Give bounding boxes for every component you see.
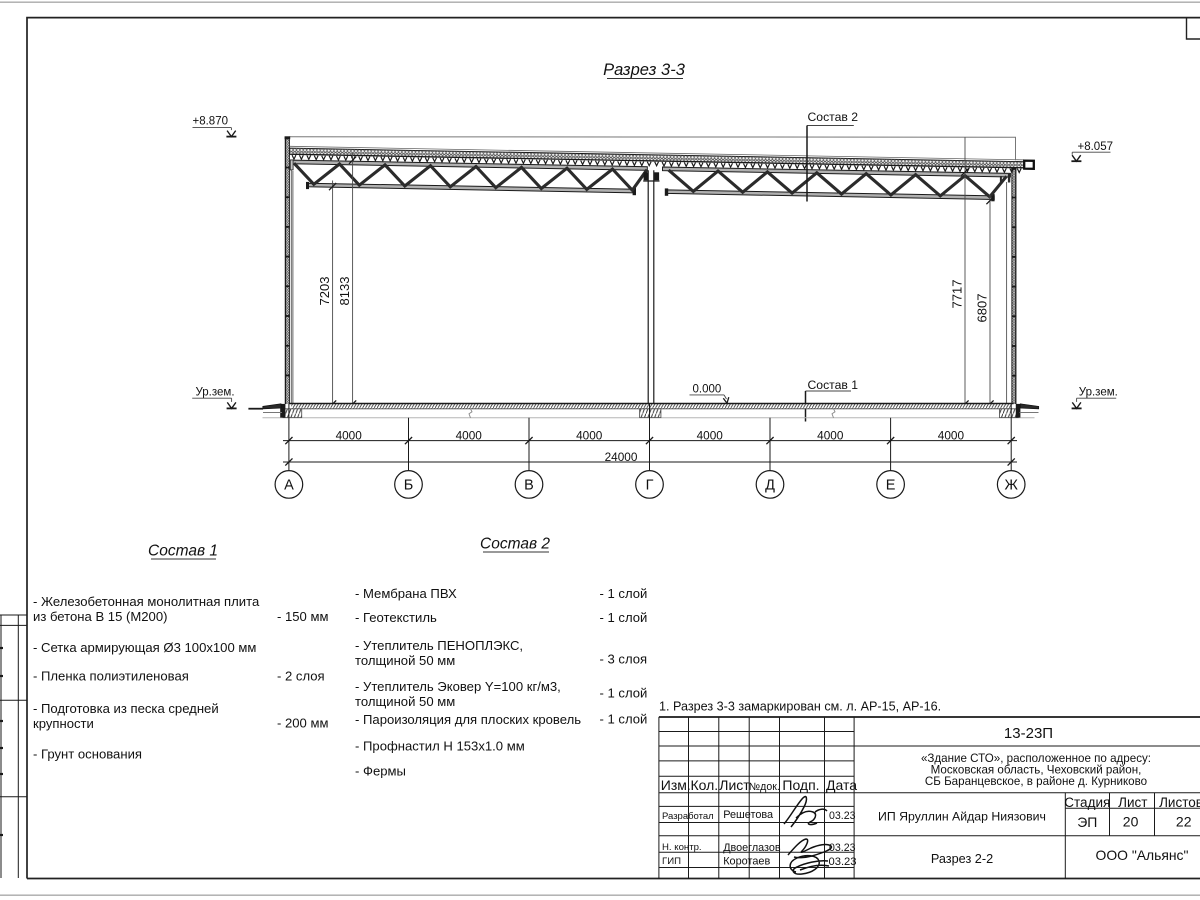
- svg-text:крупности: крупности: [33, 716, 94, 731]
- svg-text:В: В: [524, 478, 534, 494]
- svg-text:ГИП: ГИП: [662, 856, 681, 867]
- svg-text:Н. контр.: Н. контр.: [662, 842, 702, 853]
- svg-text:Б: Б: [404, 478, 414, 494]
- svg-text:13-23П: 13-23П: [1004, 725, 1053, 742]
- svg-text:- Пленка полиэтиленовая: - Пленка полиэтиленовая: [33, 669, 189, 684]
- svg-text:ИП Яруллин Айдар Ниязович: ИП Яруллин Айдар Ниязович: [878, 810, 1046, 824]
- svg-text:Лист: Лист: [719, 777, 750, 793]
- svg-text:- Подготовка из песка средней: - Подготовка из песка средней: [33, 701, 219, 716]
- svg-text:4000: 4000: [938, 429, 965, 443]
- svg-text:- Утеплитель Эковер Y=100 кг/м: - Утеплитель Эковер Y=100 кг/м3,: [355, 679, 561, 694]
- svg-text:7717: 7717: [950, 280, 965, 309]
- svg-text:Дата: Дата: [826, 777, 857, 793]
- svg-text:Состав 2: Состав 2: [808, 110, 859, 124]
- svg-text:ООО "Альянс": ООО "Альянс": [1096, 847, 1189, 863]
- svg-text:22: 22: [1176, 814, 1192, 830]
- svg-text:Разработал: Разработал: [662, 811, 714, 822]
- svg-text:Г: Г: [646, 478, 654, 494]
- svg-text:- 1 слой: - 1 слой: [600, 610, 648, 625]
- svg-text:8133: 8133: [337, 277, 352, 306]
- svg-text:Подп.: Подп.: [782, 777, 819, 793]
- svg-text:6807: 6807: [975, 294, 990, 323]
- svg-text:толщиной 50 мм: толщиной 50 мм: [355, 694, 455, 709]
- svg-text:03.23: 03.23: [829, 810, 856, 822]
- svg-text:Листов: Листов: [1159, 795, 1200, 810]
- svg-text:- 1 слой: - 1 слой: [600, 686, 648, 701]
- svg-text:Е: Е: [886, 478, 896, 494]
- svg-text:из бетона В 15 (М200): из бетона В 15 (М200): [33, 609, 168, 624]
- svg-text:Состав 1: Состав 1: [808, 378, 859, 392]
- svg-text:+8.057: +8.057: [1078, 141, 1114, 153]
- svg-text:- Фермы: - Фермы: [355, 764, 406, 779]
- svg-text:Д: Д: [765, 478, 775, 494]
- svg-text:№док.: №док.: [749, 781, 780, 793]
- svg-text:- 1 слой: - 1 слой: [600, 586, 648, 601]
- svg-text:Решетова: Решетова: [723, 809, 774, 821]
- svg-text:Ж: Ж: [1005, 478, 1019, 494]
- svg-text:- 3 слоя: - 3 слоя: [600, 651, 648, 666]
- svg-text:Двоеглазов: Двоеглазов: [723, 842, 781, 854]
- svg-text:4000: 4000: [336, 429, 363, 443]
- svg-text:А: А: [284, 478, 294, 494]
- svg-text:Ур.зем.: Ур.зем.: [1079, 386, 1118, 398]
- svg-text:- Пароизоляция для плоских кро: - Пароизоляция для плоских кровель: [355, 712, 581, 727]
- svg-text:7203: 7203: [317, 277, 332, 306]
- svg-text:- 1 слой: - 1 слой: [600, 711, 648, 726]
- svg-text:Разрез 3-3: Разрез 3-3: [603, 61, 686, 79]
- svg-text:- Сетка армирующая Ø3 100х100: - Сетка армирующая Ø3 100х100 мм: [33, 640, 256, 655]
- svg-text:Изм.: Изм.: [661, 777, 691, 793]
- svg-text:- 200 мм: - 200 мм: [277, 716, 329, 731]
- svg-text:- Мембрана ПВХ: - Мембрана ПВХ: [355, 586, 457, 601]
- svg-text:толщиной 50 мм: толщиной 50 мм: [355, 653, 455, 668]
- svg-text:- Утеплитель ПЕНОПЛЭКС,: - Утеплитель ПЕНОПЛЭКС,: [355, 638, 523, 653]
- svg-text:+8.870: +8.870: [193, 116, 229, 128]
- svg-text:4000: 4000: [697, 429, 724, 443]
- svg-text:- 2 слоя: - 2 слоя: [277, 669, 325, 684]
- svg-text:03.23: 03.23: [829, 842, 856, 854]
- svg-text:4000: 4000: [456, 429, 483, 443]
- svg-text:СБ Баранцевское, в районе д. К: СБ Баранцевское, в районе д. Курниково: [925, 775, 1147, 788]
- svg-text:- 150 мм: - 150 мм: [277, 609, 329, 624]
- svg-text:24000: 24000: [605, 450, 638, 464]
- svg-text:- Профнастил Н 153х1.0 мм: - Профнастил Н 153х1.0 мм: [355, 738, 525, 753]
- svg-text:- Геотекстиль: - Геотекстиль: [355, 610, 437, 625]
- svg-text:Состав 1: Состав 1: [148, 543, 218, 560]
- svg-text:4000: 4000: [817, 429, 844, 443]
- svg-text:0.000: 0.000: [693, 384, 722, 396]
- svg-text:Состав 2: Состав 2: [480, 536, 550, 553]
- svg-text:1. Разрез 3-3 замаркирован см.: 1. Разрез 3-3 замаркирован см. л. АР-15,…: [659, 700, 941, 714]
- svg-text:03.23: 03.23: [829, 856, 857, 868]
- svg-text:Стадия: Стадия: [1064, 795, 1110, 810]
- svg-text:20: 20: [1123, 814, 1139, 830]
- svg-text:- Грунт основания: - Грунт основания: [33, 747, 142, 762]
- svg-text:4000: 4000: [576, 429, 603, 443]
- svg-text:Разрез 2-2: Разрез 2-2: [931, 852, 993, 866]
- svg-text:Коротаев: Коротаев: [723, 856, 770, 868]
- svg-text:ЭП: ЭП: [1077, 814, 1097, 830]
- svg-text:Лист: Лист: [1118, 795, 1147, 810]
- svg-text:Кол.: Кол.: [691, 777, 719, 793]
- svg-text:Ур.зем.: Ур.зем.: [196, 386, 235, 398]
- svg-text:- Железобетонная монолитная п: - Железобетонная монолитная плита: [33, 594, 260, 609]
